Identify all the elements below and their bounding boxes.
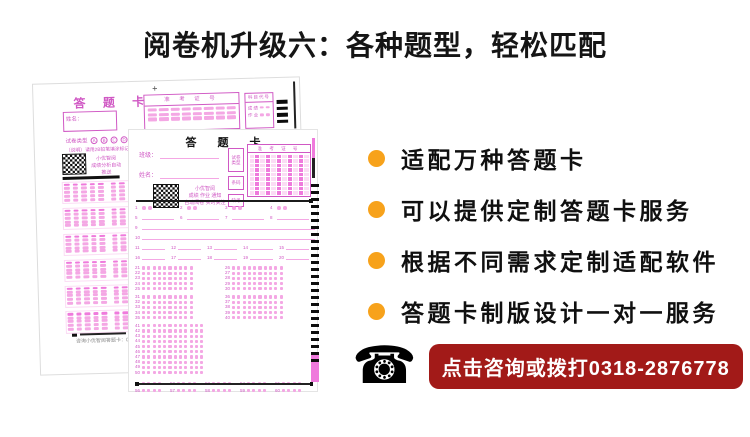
question-number: 19 bbox=[243, 256, 250, 260]
bubble bbox=[65, 224, 71, 227]
paper-type-label: 试卷类型 bbox=[65, 136, 87, 145]
option-bubble bbox=[258, 301, 261, 304]
option-bubble bbox=[158, 266, 161, 269]
option-bubble bbox=[168, 295, 171, 298]
bubble bbox=[75, 290, 81, 293]
bubble bbox=[91, 242, 97, 245]
bubble bbox=[65, 243, 71, 246]
bubble bbox=[100, 249, 106, 252]
exam-number-grid: 准 考 证 号 bbox=[247, 144, 311, 197]
bubble bbox=[89, 183, 95, 186]
question: 2 bbox=[180, 206, 219, 210]
bubble bbox=[113, 293, 119, 296]
option-bubble bbox=[177, 389, 180, 392]
option-bubble bbox=[179, 324, 182, 327]
bubble bbox=[73, 209, 79, 212]
question-number: 59 bbox=[240, 389, 247, 393]
option-bubble bbox=[269, 295, 272, 298]
digit-cell bbox=[266, 173, 270, 177]
option-bubble bbox=[237, 272, 240, 275]
bubble bbox=[64, 198, 70, 201]
bubble bbox=[90, 224, 96, 227]
option-bubble bbox=[190, 350, 193, 353]
option-bubble bbox=[253, 277, 256, 280]
digit-cell bbox=[299, 159, 303, 163]
bubble bbox=[100, 275, 106, 278]
option-bubble bbox=[184, 306, 187, 309]
digit-cell bbox=[282, 177, 286, 181]
option-bubble bbox=[247, 389, 250, 392]
option-bubble bbox=[174, 340, 177, 343]
option-bubble bbox=[158, 340, 161, 343]
bubble bbox=[114, 323, 120, 326]
option-bubble bbox=[158, 371, 161, 374]
bubble bbox=[98, 186, 104, 189]
digit-cell bbox=[293, 177, 297, 181]
option-bubble bbox=[179, 371, 182, 374]
bubble bbox=[204, 107, 213, 110]
bubble bbox=[121, 263, 127, 266]
bubble bbox=[74, 235, 80, 238]
option-bubble bbox=[174, 316, 177, 319]
option-bubble bbox=[163, 371, 166, 374]
option-bubble bbox=[163, 324, 166, 327]
bubble bbox=[99, 235, 105, 238]
option-bubble bbox=[237, 316, 240, 319]
option-bubble bbox=[264, 287, 267, 290]
option-bubble bbox=[264, 282, 267, 285]
bubble bbox=[215, 106, 224, 109]
option-bubble bbox=[190, 311, 193, 314]
digit-cell bbox=[304, 191, 308, 195]
digit-cell bbox=[266, 168, 270, 172]
digit-cell bbox=[277, 164, 281, 168]
option-bubble bbox=[277, 206, 281, 210]
option-bubble bbox=[174, 311, 177, 314]
option-bubble bbox=[280, 277, 283, 280]
bubble bbox=[73, 194, 79, 197]
digit-cell bbox=[293, 155, 297, 159]
digit-cell bbox=[250, 159, 254, 163]
option-bubble bbox=[158, 282, 161, 285]
name-field: 姓名： bbox=[63, 110, 118, 131]
bubble bbox=[101, 301, 107, 304]
option-bubble bbox=[248, 272, 251, 275]
option-bubble bbox=[200, 340, 203, 343]
option-bubble bbox=[153, 287, 156, 290]
answer-block bbox=[65, 284, 136, 308]
bubble bbox=[99, 242, 105, 245]
bubble bbox=[93, 301, 99, 304]
bubble bbox=[76, 327, 82, 330]
digit-cell bbox=[288, 159, 292, 163]
option-bubble bbox=[179, 345, 182, 348]
option-bubble bbox=[142, 272, 145, 275]
option-bubble bbox=[147, 361, 150, 364]
bubble bbox=[204, 111, 213, 114]
option-bubble bbox=[190, 295, 193, 298]
timing-mark bbox=[311, 184, 319, 187]
bubble bbox=[76, 313, 82, 316]
answer-line bbox=[214, 259, 237, 260]
option-bubble bbox=[174, 355, 177, 358]
bubble bbox=[92, 271, 98, 274]
digit-cell bbox=[271, 155, 275, 159]
option-bubble bbox=[195, 335, 198, 338]
bubble bbox=[90, 216, 96, 219]
digit-cell bbox=[304, 164, 308, 168]
option-bubble bbox=[168, 272, 171, 275]
name-label: 姓名： bbox=[139, 170, 157, 179]
digit-cell bbox=[288, 173, 292, 177]
bubble bbox=[100, 245, 106, 248]
option-bubble bbox=[153, 301, 156, 304]
option-bubble bbox=[147, 329, 150, 332]
bubble bbox=[73, 198, 79, 201]
bubble-column: 2122232425 bbox=[135, 266, 225, 292]
option-bubble bbox=[158, 355, 161, 358]
option-bubble bbox=[190, 316, 193, 319]
bubble bbox=[121, 274, 127, 277]
question-number: 57 bbox=[170, 389, 177, 393]
bubble bbox=[90, 194, 96, 197]
option-bubble bbox=[174, 272, 177, 275]
option-bubble bbox=[187, 206, 191, 210]
answer-block bbox=[65, 309, 136, 333]
option-bubble bbox=[147, 355, 150, 358]
option-bubble bbox=[258, 389, 261, 392]
feature-list: 适配万种答题卡 可以提供定制答题卡服务 根据不同需求定制适配软件 答题卡制版设计… bbox=[368, 146, 719, 350]
question-number: 20 bbox=[279, 256, 286, 260]
digit-cell bbox=[250, 173, 254, 177]
option-bubble bbox=[153, 306, 156, 309]
digit-cell bbox=[304, 155, 308, 159]
option-bubble bbox=[163, 340, 166, 343]
bubble bbox=[110, 189, 116, 192]
option-bubble bbox=[153, 350, 156, 353]
option-bubble bbox=[142, 206, 146, 210]
option-bubble bbox=[147, 316, 150, 319]
answer-row bbox=[66, 274, 132, 279]
option-bubble bbox=[179, 301, 182, 304]
bubble-row: 38 bbox=[225, 305, 315, 309]
option-bubble bbox=[163, 306, 166, 309]
feature-label: 可以提供定制答题卡服务 bbox=[401, 192, 693, 226]
bubble bbox=[93, 316, 99, 319]
digit-cell bbox=[260, 164, 264, 168]
bubble-row: 45 bbox=[135, 345, 315, 349]
digit-cell bbox=[277, 155, 281, 159]
bubble bbox=[66, 246, 72, 249]
option-bubble bbox=[253, 316, 256, 319]
option-bubble bbox=[184, 316, 187, 319]
digit-cell bbox=[250, 187, 254, 191]
option-bubble bbox=[163, 287, 166, 290]
option-bubble bbox=[179, 295, 182, 298]
option-bubble bbox=[142, 340, 145, 343]
option-bubble bbox=[184, 329, 187, 332]
option-bubble bbox=[142, 282, 145, 285]
question-row: 9 bbox=[135, 226, 315, 230]
option-bubble bbox=[274, 316, 277, 319]
question-group: 58 bbox=[205, 389, 240, 393]
barcode-label: 条码 bbox=[232, 180, 241, 186]
option-bubble bbox=[248, 266, 251, 269]
bubble bbox=[75, 294, 81, 297]
bubble bbox=[159, 113, 168, 116]
answer-line bbox=[178, 259, 201, 260]
option-bubble bbox=[264, 272, 267, 275]
option-bubble bbox=[243, 301, 246, 304]
digit-cell bbox=[255, 164, 259, 168]
option-bubble bbox=[179, 306, 182, 309]
bubble bbox=[64, 187, 70, 190]
bubble-row: 24 bbox=[135, 282, 225, 286]
page-title: 阅卷机升级六：各种题型，轻松匹配 bbox=[0, 24, 750, 64]
option-bubble bbox=[253, 282, 256, 285]
option-bubble bbox=[248, 282, 251, 285]
answer-line bbox=[178, 249, 201, 250]
option-bubble bbox=[264, 311, 267, 314]
option-bubble bbox=[232, 295, 235, 298]
bubble bbox=[148, 118, 157, 121]
digit-cell bbox=[293, 164, 297, 168]
bubble bbox=[148, 113, 157, 116]
option-bubble bbox=[195, 355, 198, 358]
option-bubble bbox=[283, 206, 287, 210]
bubble bbox=[66, 250, 72, 253]
option-bubble bbox=[243, 272, 246, 275]
bubble bbox=[98, 183, 104, 186]
option-bubble bbox=[264, 301, 267, 304]
bubble bbox=[99, 238, 105, 241]
bubble bbox=[74, 242, 80, 245]
option-bubble bbox=[184, 301, 187, 304]
question-number: 50 bbox=[135, 371, 142, 375]
option-bubble bbox=[179, 311, 182, 314]
answer-row bbox=[67, 300, 133, 305]
bubble bbox=[121, 245, 127, 248]
digit-cell bbox=[299, 155, 303, 159]
option-bubble bbox=[179, 350, 182, 353]
option-bubble bbox=[153, 389, 156, 392]
option-bubble bbox=[163, 335, 166, 338]
bubble bbox=[111, 208, 117, 211]
bubble bbox=[81, 198, 87, 201]
bubble bbox=[93, 323, 99, 326]
bubble bbox=[73, 216, 79, 219]
bubble bbox=[75, 287, 81, 290]
option-bubble bbox=[258, 316, 261, 319]
bubble bbox=[119, 193, 125, 196]
question-number: 58 bbox=[205, 389, 212, 393]
bubble bbox=[101, 315, 107, 318]
option-bubble bbox=[179, 272, 182, 275]
option-bubble bbox=[168, 361, 171, 364]
bubble bbox=[148, 108, 157, 111]
bubble-row: 30 bbox=[225, 287, 315, 291]
question: 15 bbox=[279, 246, 309, 250]
option-bubble bbox=[248, 301, 251, 304]
option-bubble bbox=[237, 282, 240, 285]
bubble-row: 35 bbox=[135, 316, 225, 320]
option-bubble bbox=[200, 355, 203, 358]
bubble bbox=[122, 289, 128, 292]
option-bubble bbox=[184, 266, 187, 269]
digit-cell bbox=[250, 191, 254, 195]
digit-cell bbox=[277, 182, 281, 186]
option-bubble bbox=[147, 340, 150, 343]
option-bubble bbox=[190, 272, 193, 275]
bubble-row: 36 bbox=[225, 295, 315, 299]
option-bubble bbox=[282, 389, 285, 392]
option-bubble bbox=[200, 371, 203, 374]
bubble bbox=[170, 108, 179, 111]
option-bubble bbox=[263, 389, 266, 392]
bubble-row: 27 bbox=[225, 271, 315, 275]
bubble bbox=[119, 208, 125, 211]
option-bubble bbox=[237, 295, 240, 298]
bubble bbox=[113, 297, 119, 300]
bubble bbox=[112, 234, 118, 237]
bubble bbox=[83, 275, 89, 278]
bubble-row: 46 bbox=[135, 350, 315, 354]
option-bubble bbox=[153, 316, 156, 319]
bubble bbox=[114, 312, 120, 315]
bubble bbox=[65, 220, 71, 223]
bubble bbox=[82, 238, 88, 241]
option-bubble bbox=[232, 306, 235, 309]
question-row: 1112131415 bbox=[135, 246, 315, 250]
option-bubble bbox=[163, 301, 166, 304]
bubble-row: 50 bbox=[135, 371, 315, 375]
option-bubble bbox=[174, 350, 177, 353]
option-bubble bbox=[168, 316, 171, 319]
bubble bbox=[83, 264, 89, 267]
paper-type-row: 试卷类型 A B C D bbox=[65, 135, 127, 145]
digit-cell bbox=[255, 168, 259, 172]
timing-marks bbox=[277, 100, 289, 123]
digit-cell bbox=[266, 187, 270, 191]
option-bubble bbox=[168, 371, 171, 374]
option-bubble bbox=[163, 272, 166, 275]
bubble bbox=[111, 215, 117, 218]
bubble bbox=[90, 212, 96, 215]
option-bubble bbox=[195, 350, 198, 353]
digit-cell bbox=[266, 164, 270, 168]
question: 17 bbox=[171, 256, 201, 260]
digit-cell bbox=[255, 191, 259, 195]
digit-cell bbox=[288, 182, 292, 186]
option-bubble bbox=[232, 272, 235, 275]
option-bubble bbox=[190, 287, 193, 290]
option-bubble bbox=[190, 355, 193, 358]
option-bubble bbox=[158, 295, 161, 298]
edge-mark bbox=[312, 138, 315, 178]
option-bubble bbox=[190, 361, 193, 364]
bubble-row: 40 bbox=[225, 316, 315, 320]
contact-button[interactable]: 点击咨询或拨打0318-2876778 bbox=[429, 344, 743, 389]
option-bubble bbox=[174, 345, 177, 348]
option-bubble bbox=[269, 316, 272, 319]
option-bubble bbox=[158, 301, 161, 304]
question: 20 bbox=[279, 256, 309, 260]
bubble bbox=[89, 186, 95, 189]
option-bubble bbox=[174, 266, 177, 269]
bubble bbox=[111, 223, 117, 226]
option-bubble bbox=[153, 345, 156, 348]
digit-cell bbox=[304, 187, 308, 191]
digit-cell bbox=[304, 182, 308, 186]
option-bubble bbox=[243, 311, 246, 314]
answer-line bbox=[187, 219, 219, 220]
option-bubble bbox=[142, 324, 145, 327]
bubble-row: 26 bbox=[225, 266, 315, 270]
bubble bbox=[67, 294, 73, 297]
bubble bbox=[93, 319, 99, 322]
bubble bbox=[100, 264, 106, 267]
option-bubble bbox=[274, 272, 277, 275]
option-bubble bbox=[232, 206, 236, 210]
answer-line bbox=[142, 259, 165, 260]
bubble bbox=[91, 238, 97, 241]
bullet-icon bbox=[368, 252, 385, 269]
bubble bbox=[82, 216, 88, 219]
digit-cell bbox=[288, 164, 292, 168]
option-bubble bbox=[190, 345, 193, 348]
option-bubble bbox=[280, 311, 283, 314]
bubble bbox=[193, 112, 202, 115]
bubble bbox=[92, 290, 98, 293]
option-bubble bbox=[188, 389, 191, 392]
digit-cell bbox=[271, 159, 275, 163]
option-bubble bbox=[142, 277, 145, 280]
option-bubble bbox=[184, 340, 187, 343]
question-area: 1234567891011121314151617181920212223242… bbox=[135, 206, 315, 402]
option-bubble bbox=[182, 389, 185, 392]
bubble bbox=[75, 264, 81, 267]
question-row: 21222324252627282930 bbox=[135, 266, 315, 292]
option-bubble bbox=[193, 389, 196, 392]
bubble-row: 48 bbox=[135, 360, 315, 364]
timing-mark bbox=[277, 100, 288, 104]
digit-cell bbox=[282, 168, 286, 172]
question-group: 57 bbox=[170, 389, 205, 393]
question-number: 9 bbox=[135, 226, 142, 230]
bubble bbox=[68, 328, 74, 331]
option-bubble bbox=[238, 206, 242, 210]
feature-label: 答题卡制版设计一对一服务 bbox=[401, 294, 719, 328]
option-bubble bbox=[163, 282, 166, 285]
digit-cell bbox=[260, 191, 264, 195]
option-bubble bbox=[228, 389, 231, 392]
question-number: 3 bbox=[225, 206, 232, 210]
question-group: 59 bbox=[240, 389, 275, 393]
answer-line bbox=[232, 219, 264, 220]
option-bubble bbox=[184, 287, 187, 290]
option-bubble bbox=[168, 301, 171, 304]
bubble bbox=[170, 117, 179, 120]
digit-cell bbox=[282, 173, 286, 177]
option-bubble bbox=[179, 355, 182, 358]
bubble bbox=[98, 197, 104, 200]
question-number: 4 bbox=[270, 206, 277, 210]
option-bubble bbox=[243, 287, 246, 290]
option-bubble bbox=[142, 361, 145, 364]
option-bubble bbox=[237, 311, 240, 314]
option-bubble bbox=[258, 272, 261, 275]
option-bubble bbox=[184, 355, 187, 358]
